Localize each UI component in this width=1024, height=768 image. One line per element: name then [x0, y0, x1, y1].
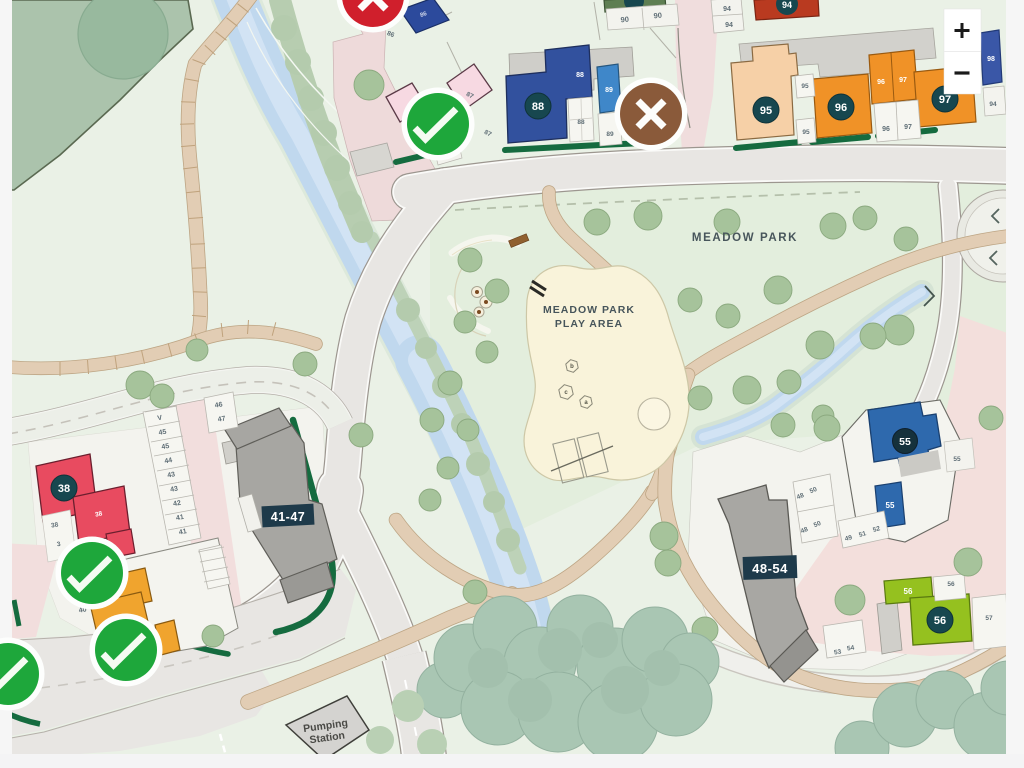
svg-text:43: 43: [170, 485, 179, 493]
svg-text:41: 41: [176, 514, 185, 522]
svg-text:56: 56: [934, 615, 946, 627]
svg-text:46: 46: [214, 401, 223, 409]
svg-text:94: 94: [989, 101, 997, 108]
svg-text:47: 47: [217, 415, 226, 423]
svg-text:55: 55: [886, 501, 895, 510]
svg-text:PLAY AREA: PLAY AREA: [555, 318, 623, 330]
svg-text:57: 57: [985, 615, 993, 622]
svg-text:41: 41: [178, 528, 187, 536]
svg-text:b: b: [570, 364, 574, 370]
svg-text:48-54: 48-54: [752, 561, 788, 576]
svg-text:97: 97: [899, 77, 907, 84]
svg-text:43: 43: [167, 471, 176, 479]
svg-text:95: 95: [801, 83, 809, 90]
svg-text:89: 89: [605, 87, 613, 94]
svg-text:MEADOW PARK: MEADOW PARK: [543, 304, 635, 316]
svg-text:94: 94: [725, 22, 733, 29]
svg-text:97: 97: [939, 94, 951, 106]
svg-text:90: 90: [620, 15, 629, 25]
svg-text:88: 88: [577, 119, 585, 126]
svg-text:94: 94: [723, 6, 731, 13]
svg-text:89: 89: [606, 131, 614, 138]
svg-text:94: 94: [782, 0, 792, 10]
svg-text:41-47: 41-47: [271, 510, 305, 524]
svg-text:95: 95: [760, 105, 772, 117]
svg-text:97: 97: [904, 124, 912, 131]
svg-text:56: 56: [947, 581, 955, 588]
svg-text:55: 55: [899, 436, 911, 448]
svg-text:MEADOW PARK: MEADOW PARK: [692, 232, 798, 244]
svg-text:45: 45: [158, 429, 167, 437]
svg-text:42: 42: [173, 500, 182, 508]
svg-text:44: 44: [164, 457, 173, 465]
svg-text:90: 90: [653, 11, 662, 21]
svg-text:45: 45: [161, 443, 170, 451]
svg-text:96: 96: [877, 79, 885, 86]
svg-text:96: 96: [835, 102, 847, 114]
svg-text:55: 55: [953, 456, 961, 463]
svg-text:88: 88: [532, 101, 544, 113]
svg-text:38: 38: [58, 483, 70, 495]
svg-text:96: 96: [882, 126, 890, 133]
svg-text:88: 88: [576, 72, 584, 79]
svg-text:98: 98: [987, 56, 995, 63]
svg-text:95: 95: [802, 129, 810, 136]
svg-text:56: 56: [904, 587, 913, 596]
